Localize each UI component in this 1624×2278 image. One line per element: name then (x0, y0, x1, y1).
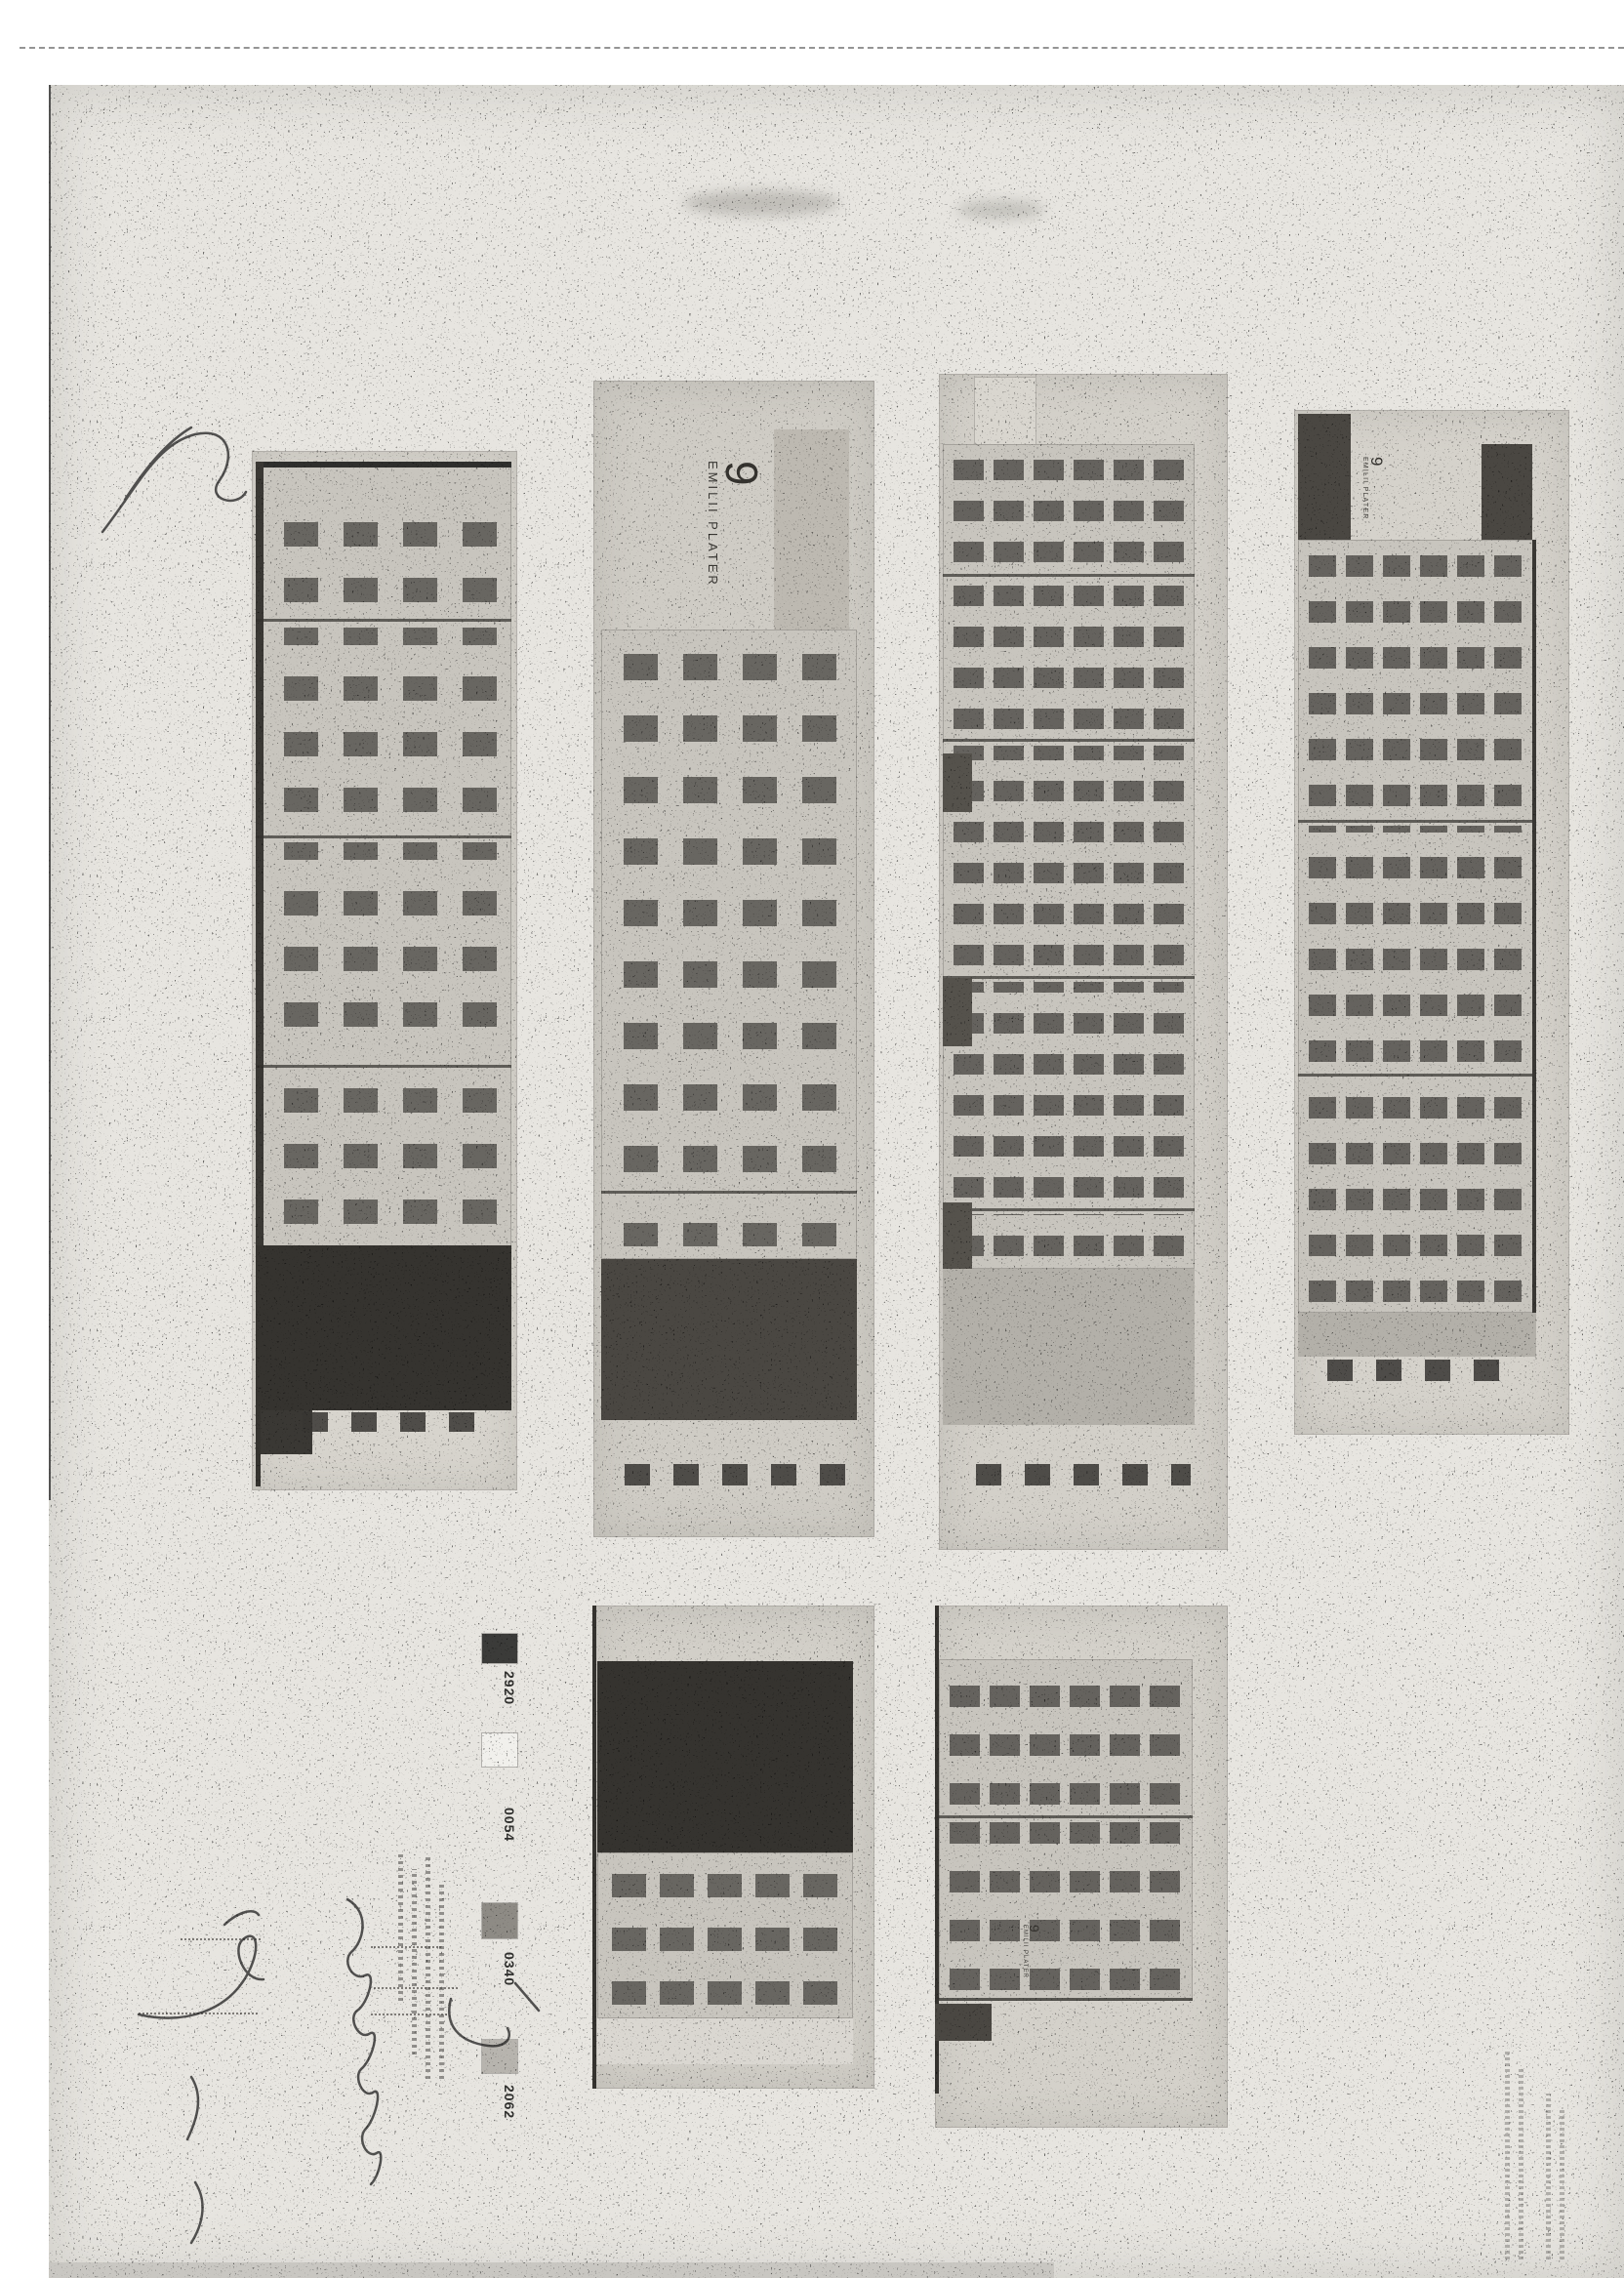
street-name: EMILII PLATER (706, 461, 720, 588)
building-number: 9 (720, 461, 763, 588)
roof-dormer-strip (625, 1464, 849, 1485)
ground-line (939, 1998, 1193, 2001)
roof-dormer-strip (976, 1464, 1191, 1485)
stamp-dotted-line (139, 2013, 258, 2014)
window-grid (1304, 1079, 1526, 1310)
facade-divider (1298, 820, 1536, 823)
window-grid (1304, 826, 1526, 1070)
photo-d-dark-block-left (1298, 414, 1351, 541)
sheet-left-edge-line (49, 85, 51, 1500)
facade-divider (939, 1815, 1193, 1818)
legend-code-3: 0340 (502, 1952, 517, 2007)
elevation-photo-c (939, 374, 1228, 1550)
legend-code-1: 2920 (502, 1671, 517, 1726)
facade-d-edge-line (1532, 540, 1536, 1313)
facade-b2-footer (597, 2018, 853, 2064)
stamp-illegible-text-line (439, 1884, 444, 2079)
facade-d (1298, 540, 1536, 1313)
window-grid (611, 1198, 849, 1256)
scan-smudge (956, 200, 1044, 220)
facade-b2-dark-section (597, 1661, 853, 1852)
legend-swatch-4 (482, 2040, 517, 2073)
scan-smudge (683, 190, 839, 216)
window-grid (945, 1665, 1185, 1811)
stamp-dotted-line (181, 1938, 261, 1940)
legend-code-2: 0054 (502, 1808, 517, 1862)
window-grid (949, 982, 1189, 1204)
elevation-photo-c2: 9 EMILII PLATER (935, 1606, 1228, 2128)
roof-dormer-strip (303, 1412, 478, 1432)
window-grid (945, 1821, 1185, 1997)
titleblock-illegible-text-line (1546, 2094, 1551, 2259)
ground-line (256, 1410, 261, 1486)
elevation-photo-d: 9 EMILII PLATER (1294, 410, 1569, 1435)
stamp-dotted-line (371, 2014, 447, 2015)
elevation-photo-a (252, 451, 517, 1490)
facade-c-base-band (943, 1269, 1195, 1425)
window-grid (949, 451, 1189, 569)
stamp-illegible-text-line (426, 1854, 430, 2079)
facade-divider (1298, 1074, 1536, 1077)
facade-divider (943, 574, 1195, 577)
building-number: 9 (1028, 1925, 1040, 1993)
building-number: 9 (1368, 457, 1384, 533)
titleblock-illegible-text-line (1560, 2108, 1564, 2259)
facade-c2 (939, 1659, 1193, 2001)
facade-a (256, 462, 511, 1410)
roof-dormer-strip (1327, 1360, 1522, 1381)
facade-c (943, 444, 1195, 1269)
photo-b-shadow-band (774, 429, 849, 630)
window-grid (271, 842, 509, 1037)
facade-divider (601, 1191, 857, 1194)
entrance-door (943, 978, 972, 1046)
facade-divider (256, 1065, 511, 1068)
facade-c2-dark-notch (935, 2004, 992, 2041)
facade-b (601, 630, 857, 1259)
window-grid (271, 628, 509, 823)
facade-divider (256, 835, 511, 838)
photo-c-top-tab (974, 377, 1036, 445)
titleblock-illegible-text-line (1505, 2050, 1510, 2259)
facade-divider (943, 1208, 1195, 1211)
street-name: EMILII PLATER (1022, 1925, 1028, 1993)
facade-divider (943, 739, 1195, 742)
facade-a-dark-section (256, 1245, 511, 1410)
facade-divider (943, 976, 1195, 979)
facade-d-base-band (1298, 1313, 1536, 1357)
legend-swatch-2 (482, 1733, 517, 1767)
stamp-dotted-line (371, 1946, 441, 1948)
facade-b2 (597, 1852, 853, 2018)
photo-b2-edge-line (592, 1606, 596, 2089)
window-grid (611, 636, 849, 1183)
elevation-photo-b2 (593, 1606, 874, 2089)
window-grid (271, 504, 509, 613)
street-name: EMILII PLATER (1361, 457, 1368, 533)
legend-swatch-1 (482, 1634, 517, 1663)
address-label-tiny: 9 EMILII PLATER (1022, 1925, 1040, 1993)
legend-code-4: 2062 (502, 2085, 517, 2139)
scan-bottom-band (49, 2262, 1054, 2278)
facade-b-dark-section (601, 1259, 857, 1420)
legend-swatch-3 (482, 1903, 517, 1938)
stamp-illegible-text-line (398, 1854, 403, 2001)
window-grid (271, 1073, 509, 1235)
entrance-door (943, 753, 972, 812)
window-grid (949, 580, 1189, 736)
window-grid (1304, 546, 1526, 814)
photo-d-dark-block-right (1482, 444, 1532, 542)
window-grid (605, 1856, 845, 2014)
roofline-a (256, 462, 511, 468)
elevation-photo-b: 9 EMILII PLATER (593, 381, 874, 1537)
entrance-door (943, 1202, 972, 1269)
facade-divider (256, 619, 511, 622)
window-grid (949, 746, 1189, 972)
address-label-small: 9 EMILII PLATER (1361, 457, 1384, 533)
scan-edge-dashed-line (20, 47, 1624, 49)
scanned-document-page: 9 EMILII PLATER (0, 0, 1624, 2278)
address-label-large: 9 EMILII PLATER (706, 461, 763, 588)
window-grid (949, 1214, 1189, 1263)
stamp-illegible-text-line (412, 1869, 417, 2054)
titleblock-illegible-text-line (1519, 2069, 1523, 2259)
